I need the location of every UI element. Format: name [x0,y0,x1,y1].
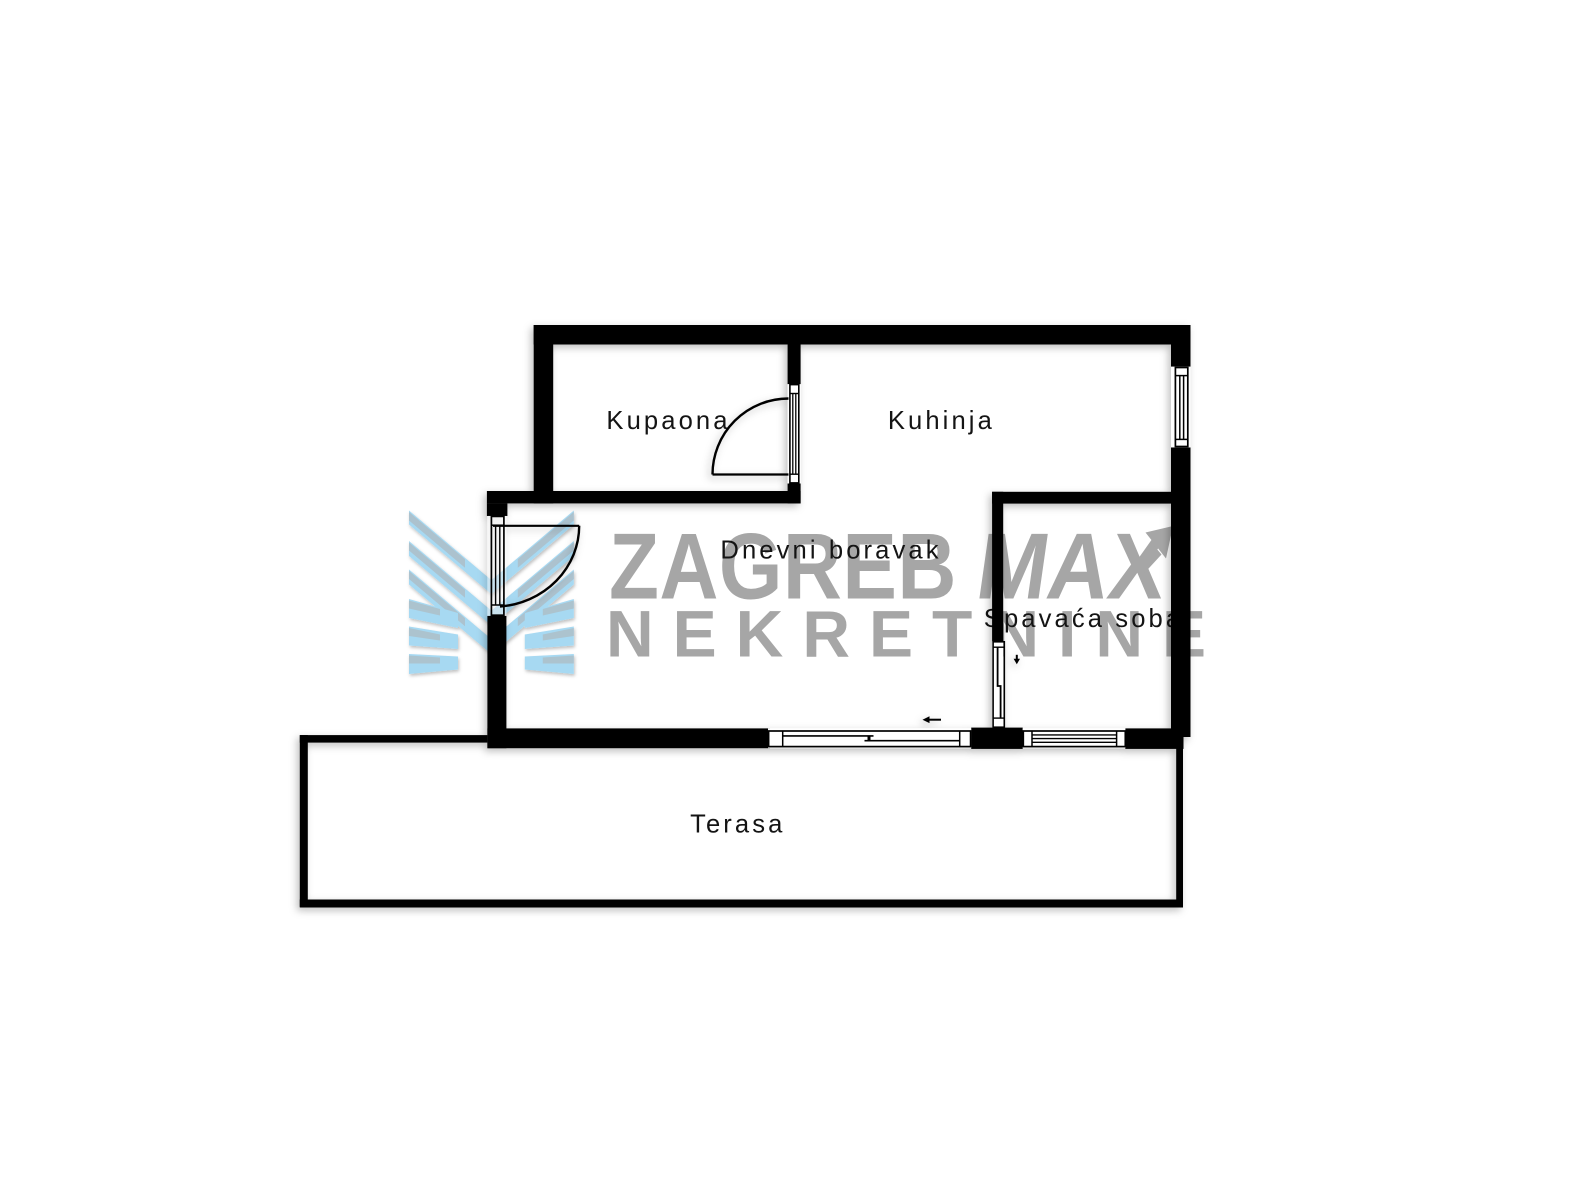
svg-text:Kupaona: Kupaona [606,407,730,435]
svg-text:Spavaća soba: Spavaća soba [984,605,1183,633]
svg-text:Terasa: Terasa [690,811,785,839]
svg-text:Dnevni boravak: Dnevni boravak [720,537,941,565]
svg-text:Kuhinja: Kuhinja [888,407,995,435]
